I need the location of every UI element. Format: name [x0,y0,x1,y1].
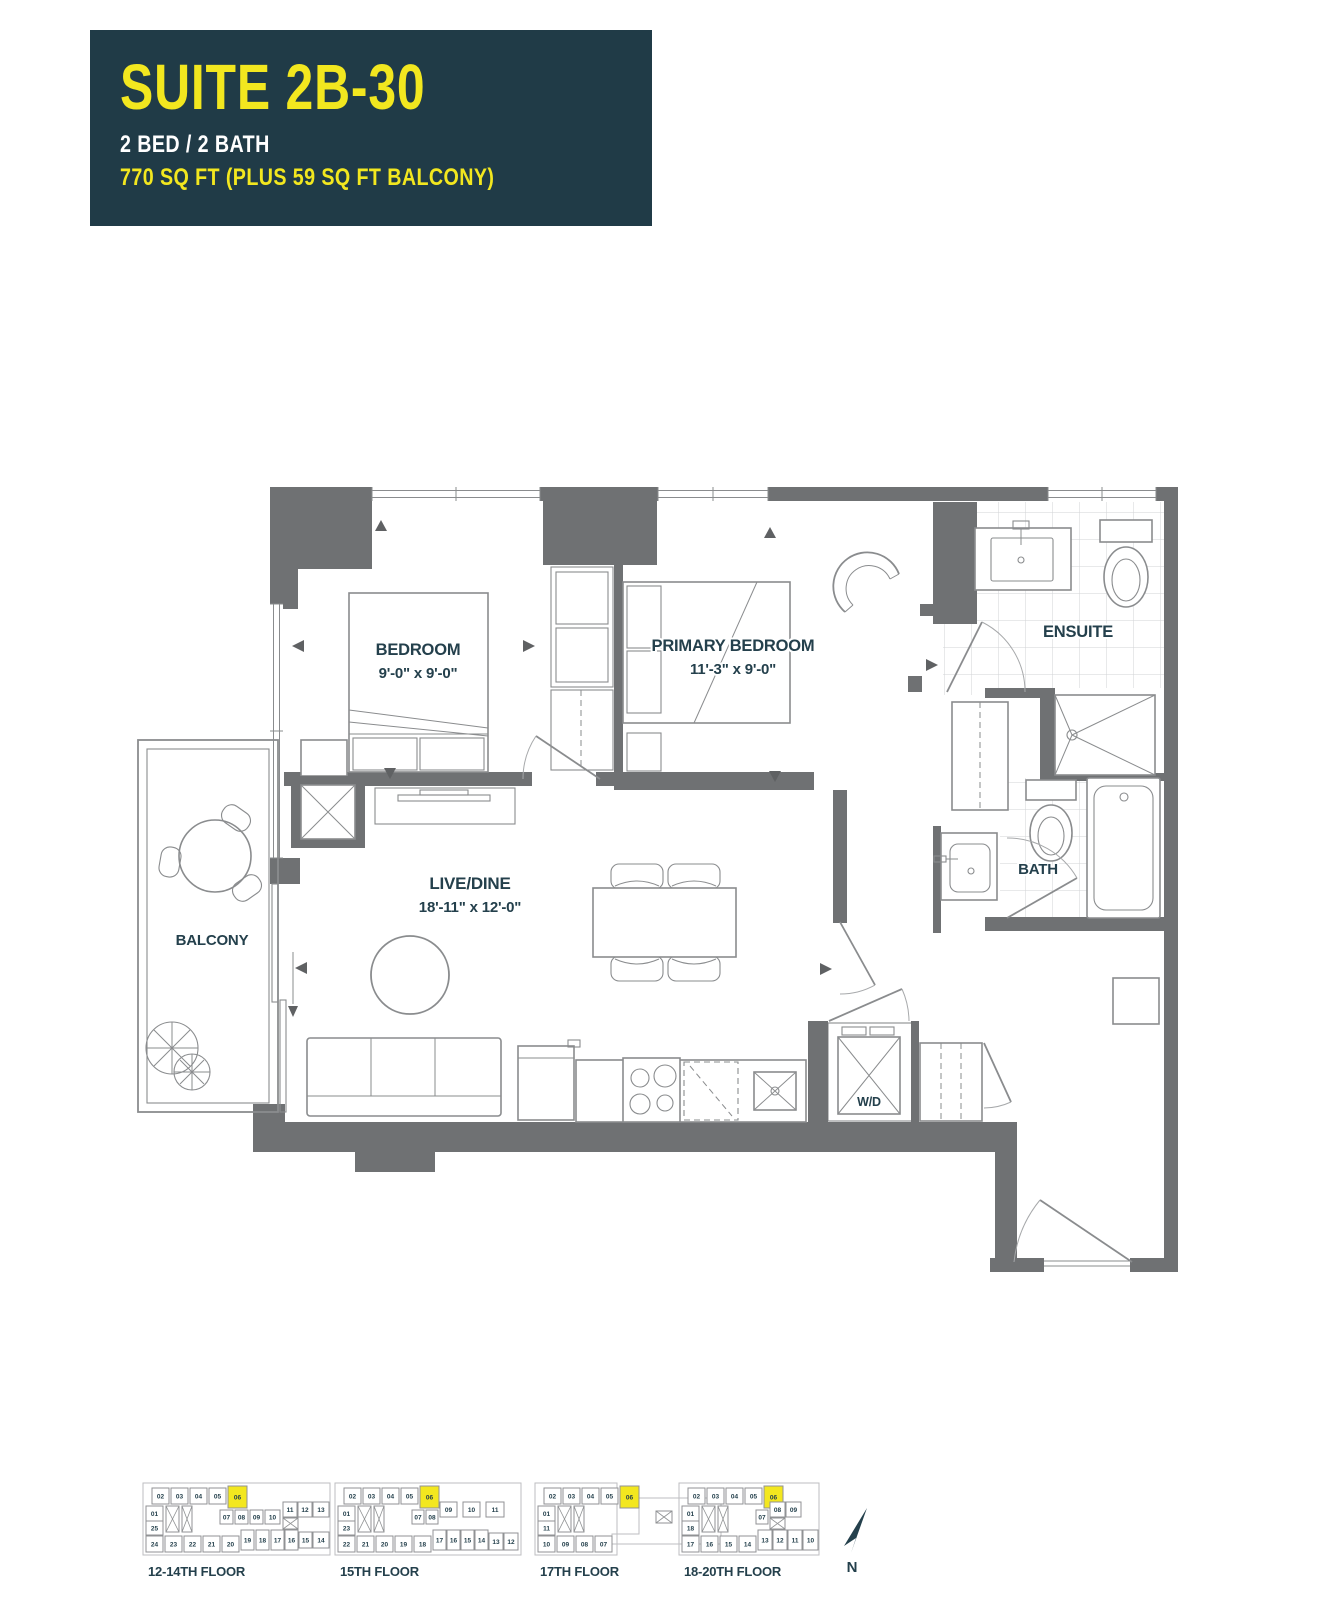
chair-icon [668,956,720,981]
keyplan-unit-number: 17 [274,1538,282,1545]
keyplan-unit-number: 23 [343,1526,351,1533]
keyplans: 0203040506012507080910111213242322212019… [143,1483,819,1579]
keyplan-4: 02030405060118070809171615141312111018-2… [679,1483,819,1579]
keyplan-unit-number: 12 [301,1507,309,1514]
balcony-slider-panel [280,1000,286,1112]
keyplan-unit-number: 05 [606,1494,614,1501]
closet-icon [551,567,613,687]
bed-icon [349,593,488,772]
keyplan-unit-number: 15 [302,1538,310,1545]
sofa-icon [307,1038,501,1116]
live-dine-label: LIVE/DINE [429,874,510,893]
closet-door [984,1043,1011,1102]
keyplan-unit-number: 04 [195,1494,203,1501]
keyplan-unit-number: 10 [543,1542,551,1549]
keyplan-unit-number: 11 [543,1526,550,1533]
keyplan-unit-number: 09 [445,1507,453,1514]
keyplan-unit-number: 11 [492,1507,499,1514]
keyplan-unit-number: 07 [600,1542,608,1549]
keyplan-unit-number: 09 [253,1515,261,1522]
keyplan-unit-number: 14 [317,1538,325,1545]
keyplan-unit-number: 01 [343,1511,351,1518]
keyplan-2: 0203040506012307080910112221201918171615… [335,1483,521,1579]
keyplan-unit-number: 01 [687,1511,695,1518]
linen-closet [952,702,1008,810]
keyplan-unit-number: 18 [687,1526,695,1533]
keyplan-unit-number: 10 [468,1507,476,1514]
rug-icon [371,936,449,1014]
keyplan-unit-number: 09 [562,1542,570,1549]
accent-chair-icon [833,552,899,612]
keyplan-unit-number: 16 [288,1538,296,1545]
ensuite-label: ENSUITE [1043,623,1113,641]
keyplan-unit-number: 06 [234,1495,242,1502]
laundry: W/D [838,1027,900,1114]
kitchen [518,1040,806,1122]
keyplan-unit-number: 03 [568,1494,576,1501]
north-arrow-icon [844,1508,867,1553]
keyplan-floor-label: 17TH FLOOR [540,1564,620,1579]
keyplan-unit-number: 13 [317,1507,325,1514]
keyplan-unit-number: 06 [426,1495,434,1502]
nightstand-icon [301,740,347,776]
primary-bedroom-dims: 11'-3" x 9'-0" [690,661,776,678]
chair-icon [668,864,720,889]
balcony-label: BALCONY [176,932,249,949]
bedroom-dims: 9'-0" x 9'-0" [379,665,458,682]
keyplan-unit-number: 01 [543,1511,551,1518]
keyplan-unit-number: 12 [507,1539,515,1546]
keyplan-unit-number: 21 [362,1542,370,1549]
floorplan-page: SUITE 2B-30 2 BED / 2 BATH 770 SQ FT (PL… [0,0,1332,1600]
keyplan-unit-number: 02 [549,1494,557,1501]
keyplan-unit-number: 07 [223,1515,231,1522]
tv-icon [398,795,490,801]
bedroom-label: BEDROOM [376,641,461,659]
keyplan-unit-number: 25 [151,1526,159,1533]
floor-plan: BEDROOM 9'-0" x 9'-0" PRIMARY BEDROOM 11… [0,0,1332,1600]
keyplan-unit-number: 03 [368,1494,376,1501]
keyplan-unit-number: 16 [450,1538,458,1545]
keyplan-unit-number: 15 [725,1542,733,1549]
bath-label: BATH [1018,861,1058,878]
keyplan-unit-number: 20 [227,1542,235,1549]
keyplan-floor-label: 12-14TH FLOOR [148,1564,246,1579]
keyplan-unit-number: 09 [790,1507,798,1514]
primary-bedroom-label: PRIMARY BEDROOM [652,637,815,655]
keyplan-unit-number: 12 [776,1538,784,1545]
keyplan-unit-number: 04 [731,1494,739,1501]
keyplan-unit-number: 08 [774,1507,782,1514]
entry-door [1040,1200,1132,1262]
primary-bedroom: PRIMARY BEDROOM 11'-3" x 9'-0" [623,552,899,771]
keyplan-unit-number: 16 [706,1542,714,1549]
keyplan-unit-number: 17 [687,1542,695,1549]
keyplan-unit-number: 10 [807,1538,815,1545]
keyplan-unit-number: 13 [492,1539,500,1546]
laundry-label: W/D [857,1095,881,1109]
keyplan-unit-number: 06 [770,1495,778,1502]
keyplan-floor-label: 18-20TH FLOOR [684,1564,782,1579]
keyplan-1: 0203040506012507080910111213242322212019… [143,1483,330,1579]
keyplan-unit-number: 04 [387,1494,395,1501]
keyplan-unit-number: 21 [208,1542,216,1549]
keyplan-unit-number: 03 [712,1494,720,1501]
tv-console-icon [375,788,515,824]
keyplan-unit-number: 24 [151,1542,159,1549]
balcony: BALCONY [138,740,278,1112]
bedroom: BEDROOM 9'-0" x 9'-0" [301,567,613,776]
laundry-door [829,989,902,1021]
keyplan-unit-number: 10 [269,1515,277,1522]
keyplan-unit-number: 18 [419,1542,427,1549]
keyplan-unit-number: 19 [244,1538,252,1545]
keyplan-unit-number: 17 [436,1538,444,1545]
toilet-icon [1030,805,1072,861]
keyplan-unit-number: 22 [343,1542,351,1549]
toilet-tank-icon [1100,520,1152,542]
keyplan-unit-number: 20 [381,1542,389,1549]
keyplan-unit-number: 08 [238,1515,246,1522]
keyplan-unit-number: 11 [792,1538,799,1545]
shower-icon [1055,695,1155,775]
bathtub-icon [1087,778,1160,918]
keyplan-unit-number: 18 [259,1538,267,1545]
keyplan-unit-number: 05 [214,1494,222,1501]
keyplan-unit-number: 06 [626,1495,634,1502]
cabinet-icon [1113,978,1159,1024]
keyplan-unit-number: 05 [406,1494,414,1501]
fridge-icon [518,1046,574,1120]
keyplan-unit-number: 14 [744,1542,752,1549]
keyplan-unit-number: 05 [750,1494,758,1501]
primary-door [840,922,875,985]
dining-table-icon [593,888,736,957]
keyplan-unit-number: 14 [478,1538,486,1545]
keyplan-unit-number: 08 [428,1515,436,1522]
north-label: N [847,1559,858,1576]
keyplan-unit-number: 02 [349,1494,357,1501]
balcony-rail [138,740,278,1112]
keyplan-unit-number: 02 [157,1494,165,1501]
foyer-closet-icon [920,1043,982,1121]
keyplan-unit-number: 01 [151,1511,159,1518]
keyplan-unit-number: 11 [287,1507,294,1514]
north-arrow: N [844,1508,867,1576]
keyplan-unit-number: 03 [176,1494,184,1501]
live-dine-dims: 18'-11" x 12'-0" [419,899,521,916]
bench-icon [627,733,661,771]
keyplan-unit-number: 08 [581,1542,589,1549]
keyplan-unit-number: 23 [170,1542,178,1549]
keyplan-unit-number: 15 [464,1538,472,1545]
keyplan-unit-number: 22 [189,1542,197,1549]
keyplan-unit-number: 04 [587,1494,595,1501]
keyplan-unit-number: 02 [693,1494,701,1501]
keyplan-unit-number: 13 [761,1538,769,1545]
bedroom-door [536,736,600,779]
chair-icon [611,864,663,889]
keyplan-unit-number: 19 [400,1542,408,1549]
keyplan-floor-label: 15TH FLOOR [340,1564,420,1579]
toilet-tank-icon [1026,780,1076,800]
chair-icon [611,956,663,981]
keyplan-unit-number: 07 [758,1515,766,1522]
closet-icon [551,690,613,770]
vanity-icon [941,833,997,900]
toilet-icon [1104,547,1148,607]
keyplan-unit-number: 07 [414,1515,422,1522]
